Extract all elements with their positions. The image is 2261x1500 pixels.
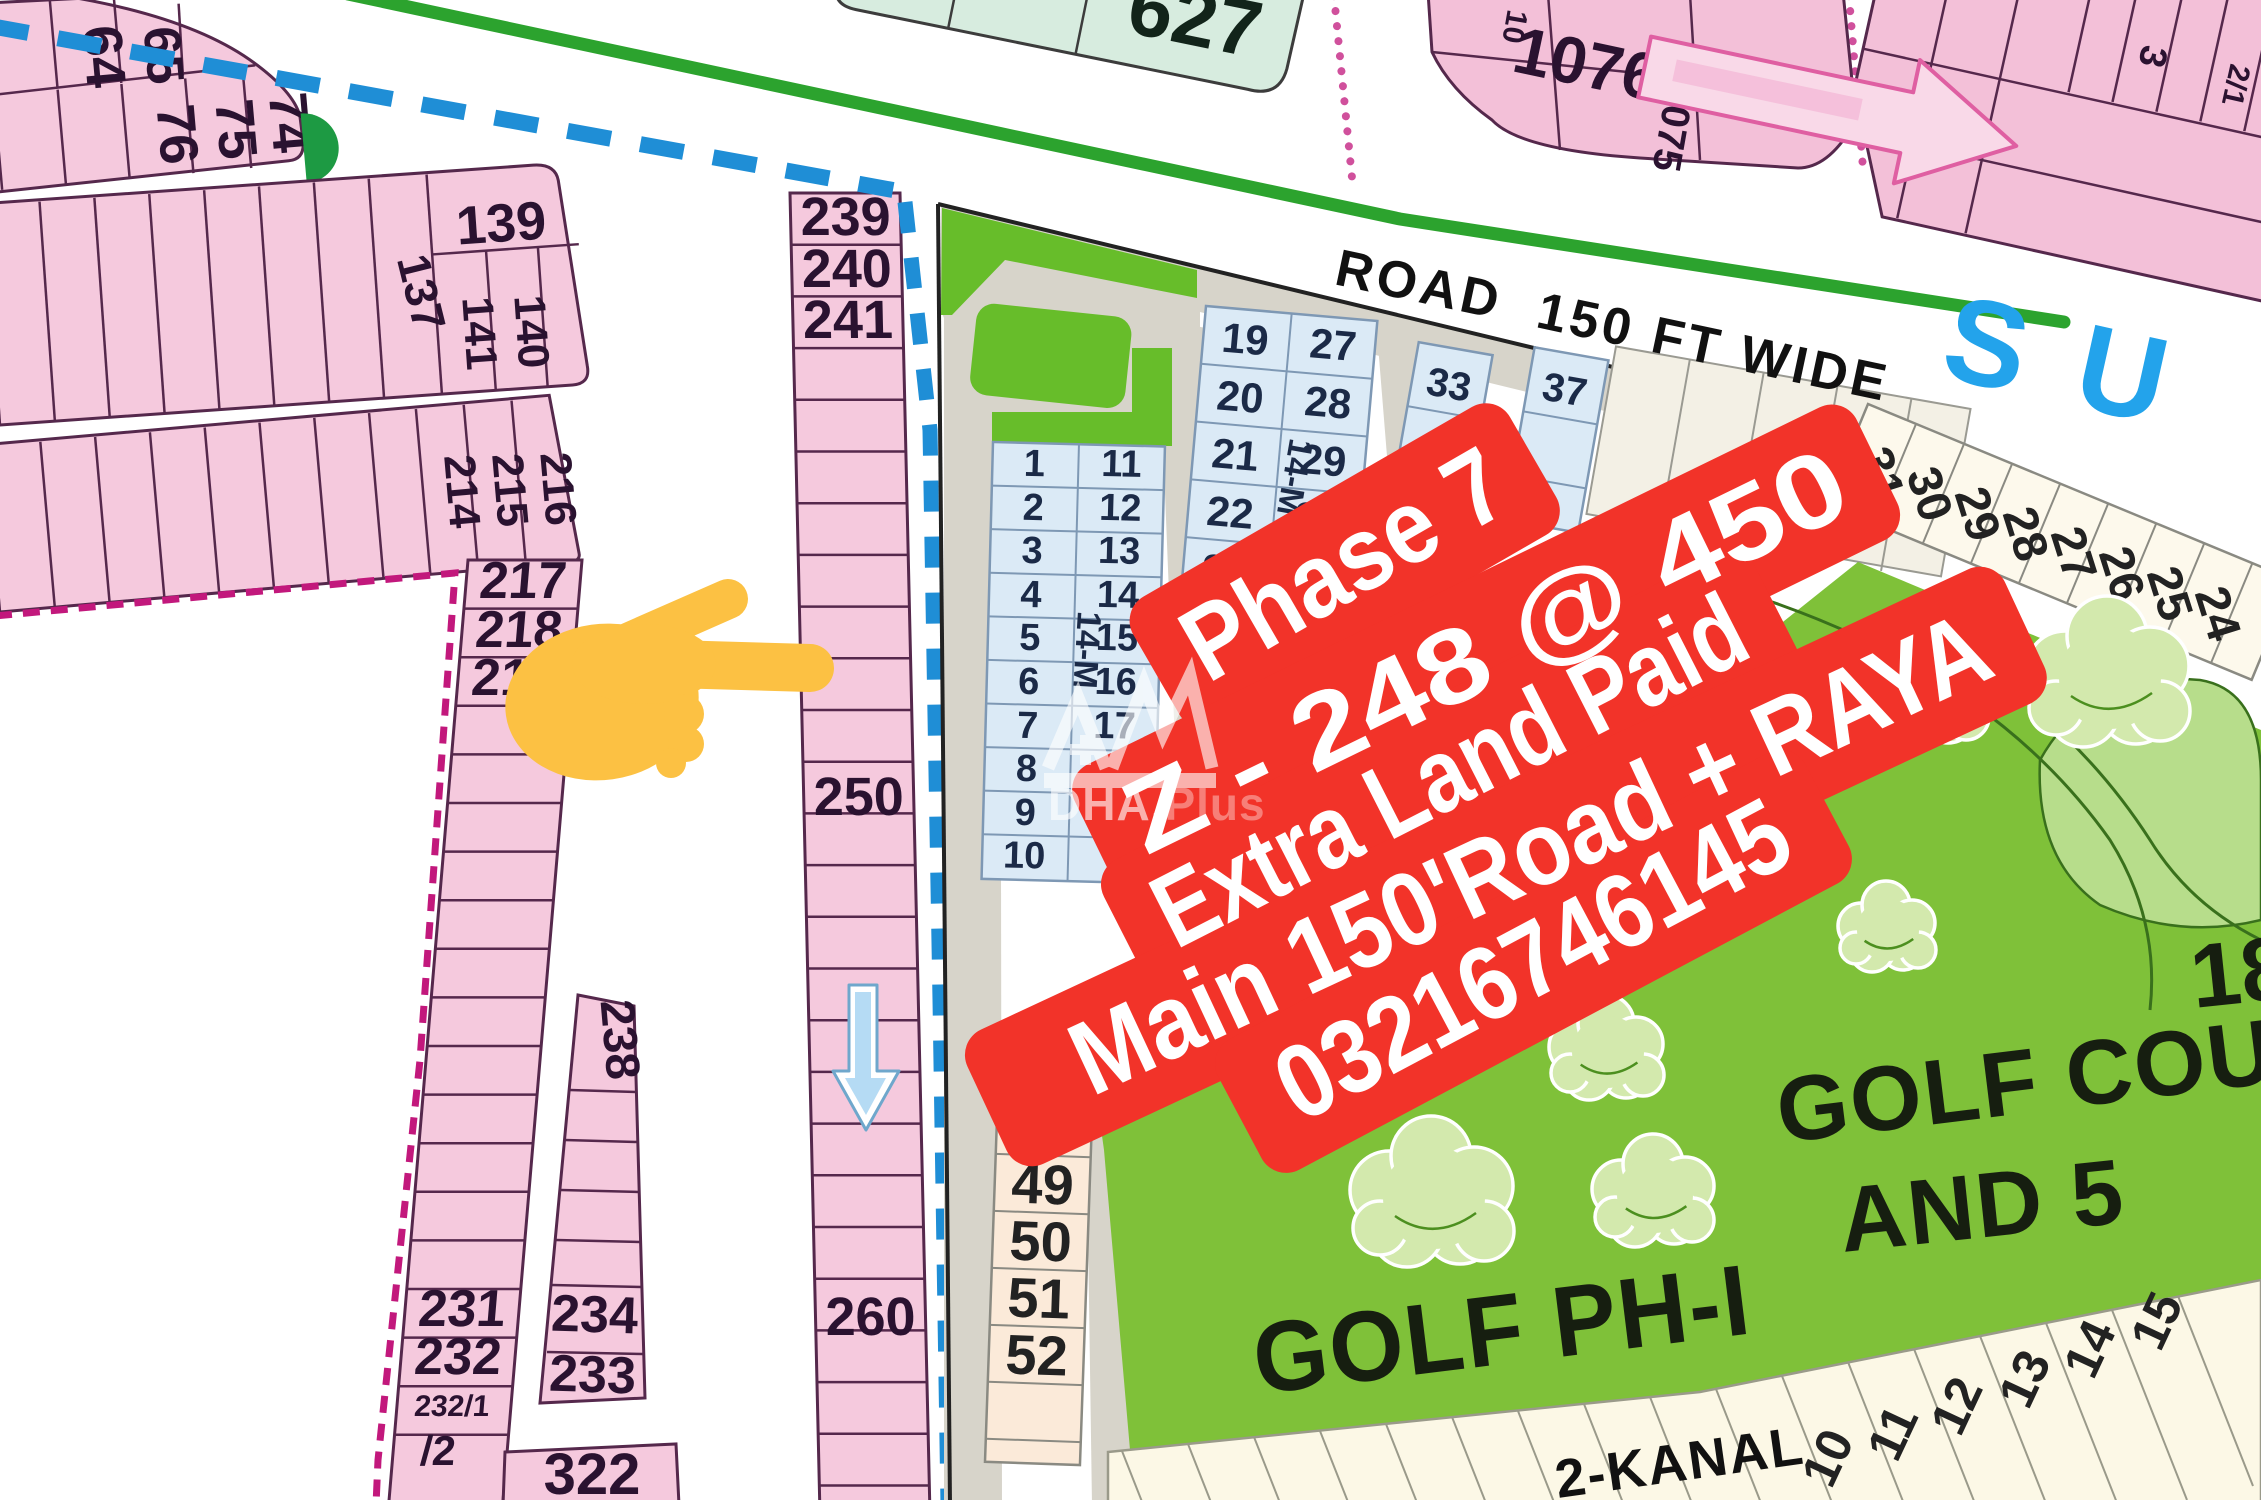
svg-text:238: 238 bbox=[590, 997, 650, 1081]
svg-text:322: 322 bbox=[544, 1442, 641, 1500]
svg-text:250: 250 bbox=[813, 767, 904, 827]
svg-text:8: 8 bbox=[1015, 748, 1037, 791]
svg-text:241: 241 bbox=[802, 290, 893, 350]
svg-text:260: 260 bbox=[825, 1287, 916, 1347]
svg-text:233: 233 bbox=[548, 1345, 637, 1406]
svg-text:10: 10 bbox=[1495, 7, 1533, 46]
svg-text:10: 10 bbox=[1002, 834, 1045, 877]
svg-text:64: 64 bbox=[70, 23, 138, 91]
svg-text:22: 22 bbox=[1205, 487, 1256, 538]
svg-text:21: 21 bbox=[1210, 429, 1261, 480]
svg-text:11: 11 bbox=[1101, 443, 1142, 486]
svg-text:27: 27 bbox=[1308, 319, 1359, 370]
svg-text:215: 215 bbox=[482, 451, 537, 528]
svg-text:/2: /2 bbox=[419, 1427, 458, 1474]
svg-text:28: 28 bbox=[1303, 377, 1354, 428]
svg-text:13: 13 bbox=[1097, 530, 1140, 573]
svg-text:5: 5 bbox=[1019, 617, 1041, 660]
svg-text:52: 52 bbox=[1005, 1322, 1069, 1387]
svg-text:141: 141 bbox=[452, 295, 506, 372]
svg-text:139: 139 bbox=[454, 190, 548, 256]
svg-text:14-M: 14-M bbox=[1065, 610, 1108, 690]
svg-text:33: 33 bbox=[1423, 359, 1474, 410]
svg-text:19: 19 bbox=[1220, 314, 1271, 365]
svg-text:20: 20 bbox=[1215, 371, 1266, 422]
svg-text:12: 12 bbox=[1099, 487, 1142, 530]
svg-text:3: 3 bbox=[1021, 530, 1043, 573]
svg-text:18: 18 bbox=[2186, 918, 2261, 1028]
svg-text:234: 234 bbox=[550, 1285, 639, 1346]
svg-text:76: 76 bbox=[144, 102, 209, 167]
svg-text:232/1: 232/1 bbox=[413, 1390, 491, 1423]
svg-text:216: 216 bbox=[530, 450, 585, 527]
svg-text:4: 4 bbox=[1020, 574, 1042, 617]
svg-text:2: 2 bbox=[1022, 487, 1044, 530]
svg-text:37: 37 bbox=[1539, 365, 1590, 416]
svg-text:140: 140 bbox=[504, 293, 558, 370]
svg-text:239: 239 bbox=[800, 187, 891, 247]
svg-text:50: 50 bbox=[1009, 1208, 1073, 1273]
svg-text:9: 9 bbox=[1014, 792, 1036, 835]
svg-text:1: 1 bbox=[1023, 443, 1045, 486]
svg-text:7: 7 bbox=[1016, 705, 1038, 748]
svg-text:6: 6 bbox=[1018, 661, 1040, 704]
svg-text:232: 232 bbox=[412, 1328, 504, 1386]
svg-text:51: 51 bbox=[1007, 1265, 1071, 1330]
svg-text:214: 214 bbox=[434, 453, 489, 531]
svg-text:DHA.Plus: DHA.Plus bbox=[1048, 778, 1266, 830]
